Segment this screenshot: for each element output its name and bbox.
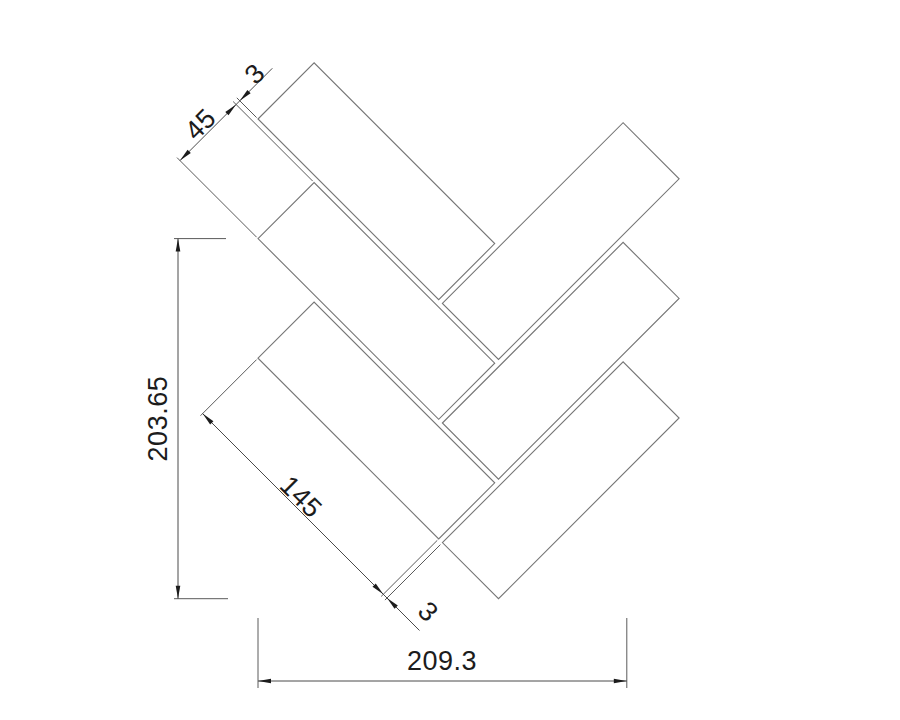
drawing-background: [0, 0, 900, 720]
cad-viewport: 4531453203.65209.3: [0, 0, 900, 720]
overall-width-label: 209.3: [407, 646, 477, 676]
overall-height-label: 203.65: [143, 376, 173, 462]
herringbone-tile-drawing: 4531453203.65209.3: [0, 0, 900, 720]
